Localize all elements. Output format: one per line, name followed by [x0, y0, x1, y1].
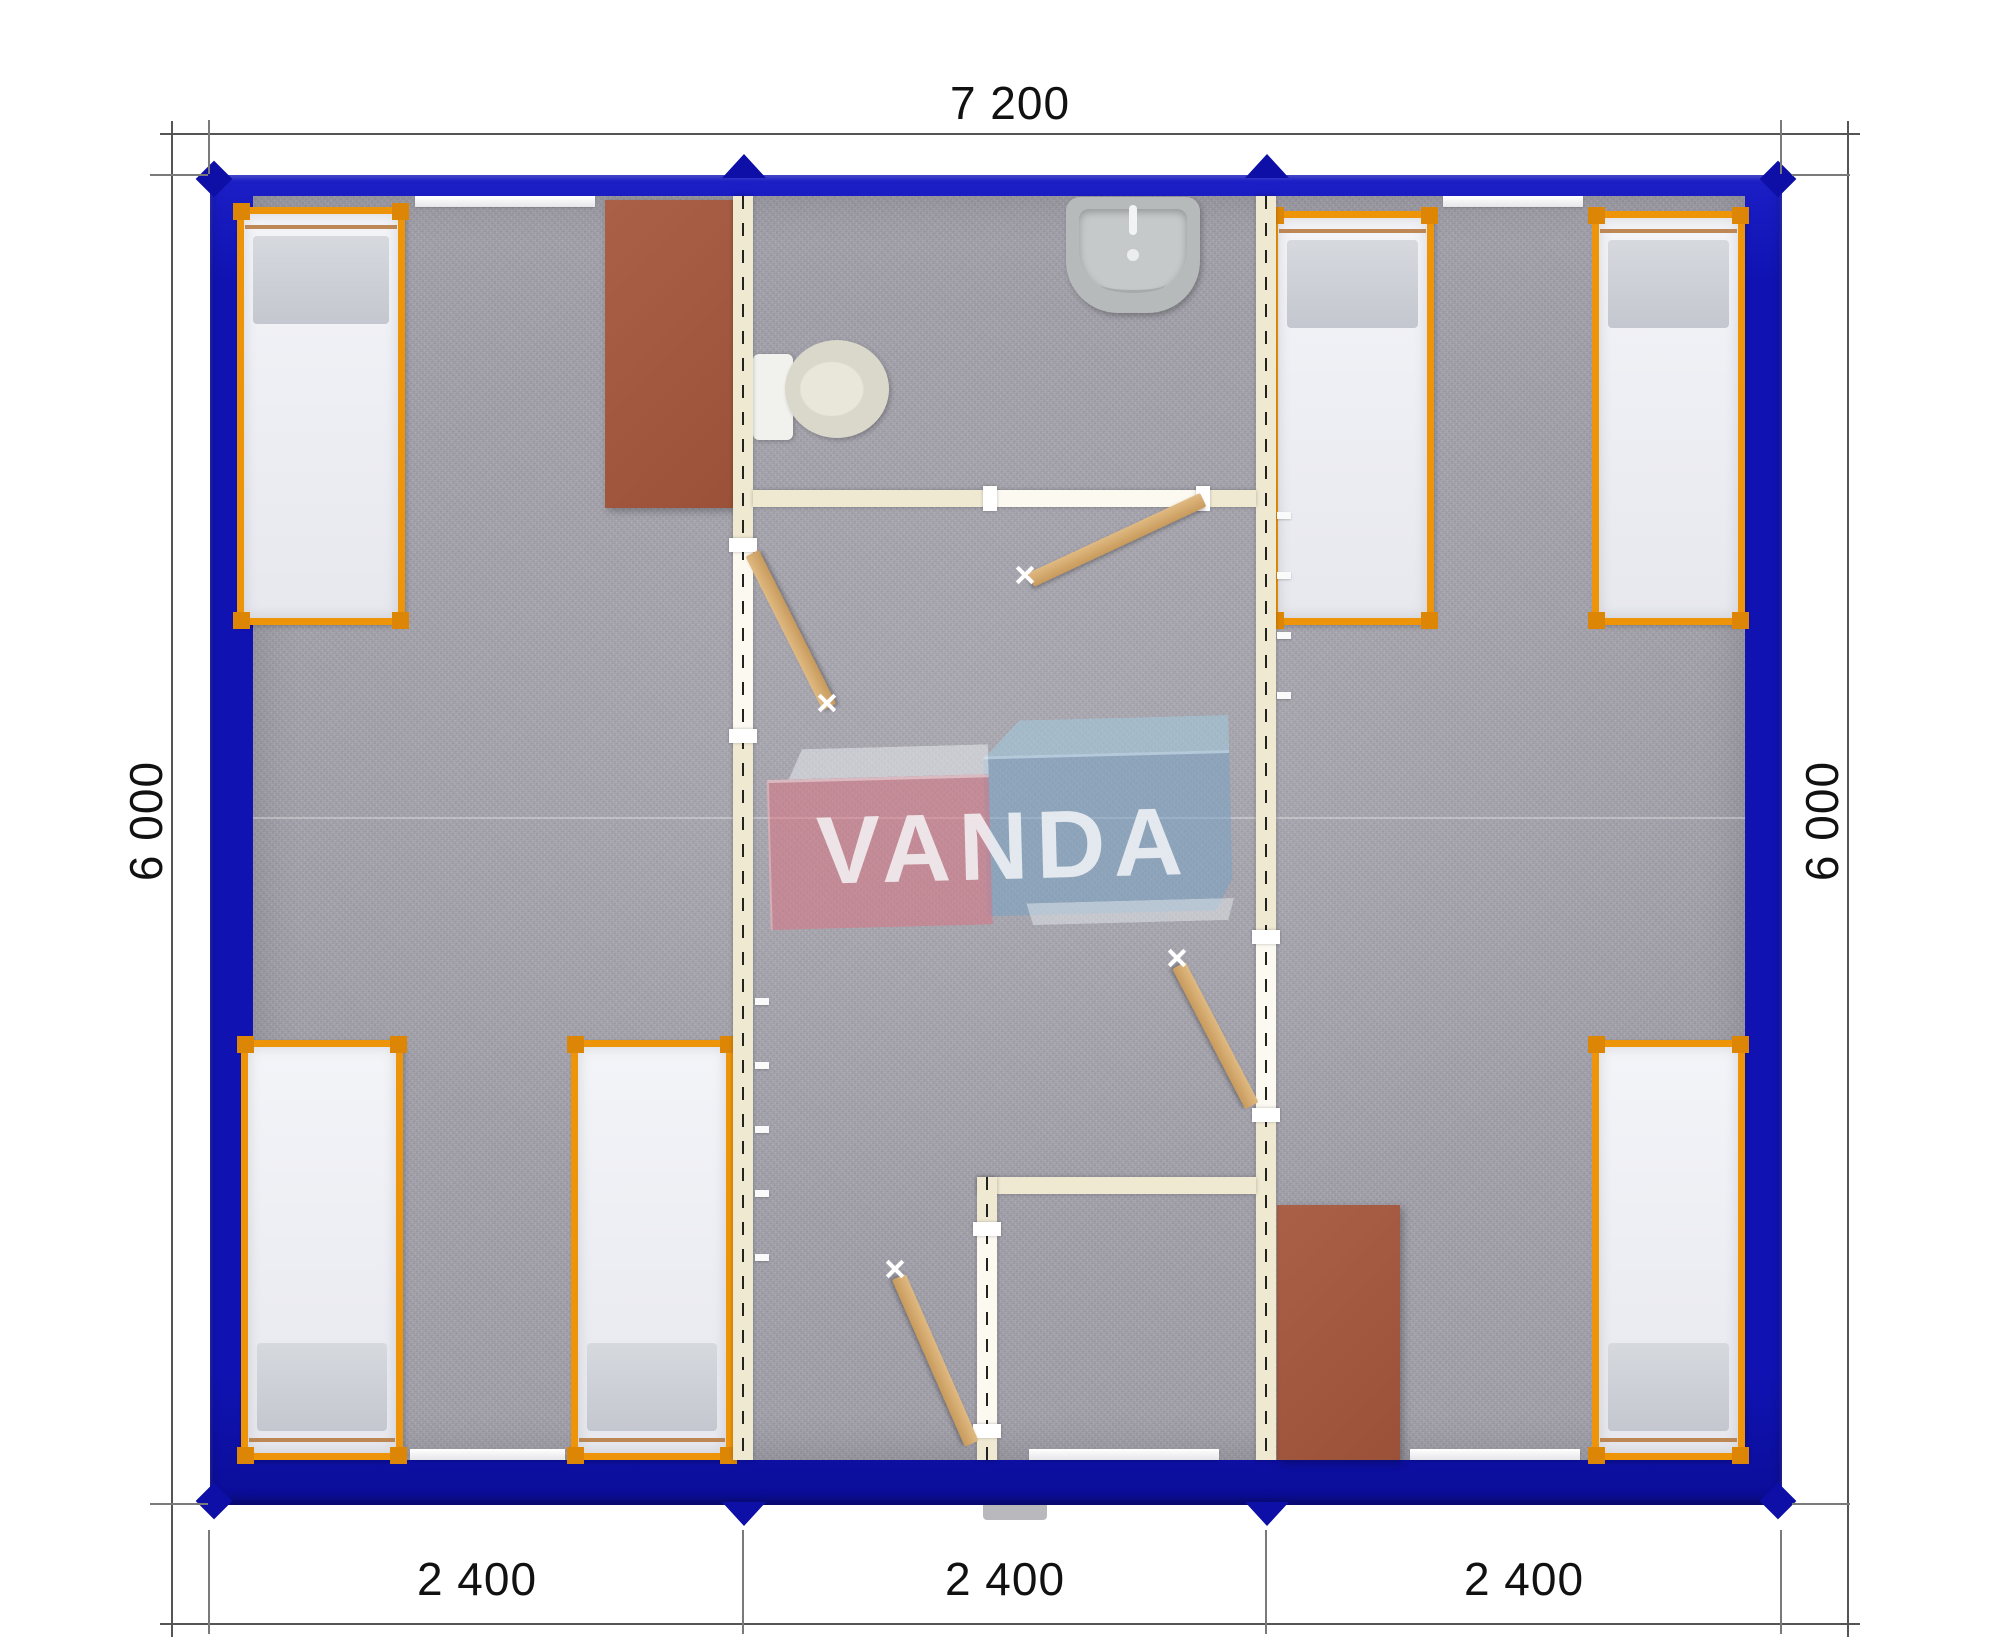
- extension-line: [742, 1530, 744, 1634]
- extension-line: [208, 120, 210, 174]
- bed-pillow: [253, 236, 389, 324]
- sink-drain: [1127, 249, 1139, 261]
- module-joint-arrow-bottom: [1245, 1502, 1289, 1526]
- door-opening: [977, 1233, 997, 1430]
- toilet-bowl: [785, 340, 889, 438]
- logo-text: VANDA: [772, 786, 1235, 908]
- extension-line: [208, 1530, 210, 1634]
- window-top-right-room: [1443, 196, 1583, 207]
- extension-line: [1792, 1503, 1850, 1505]
- floor-plan-canvas: 7 200 6 000 6 000 2 400 2 400 2 400: [0, 0, 2000, 1648]
- coat-hook: [1277, 692, 1291, 699]
- dimension-label-height-right: 6 000: [1799, 711, 1845, 931]
- coat-hook: [1277, 632, 1291, 639]
- module-joint-arrow-bottom: [722, 1502, 766, 1526]
- module-joint-arrow-top: [1245, 154, 1289, 178]
- sink-edge: [1100, 275, 1166, 293]
- vanda-watermark-logo: VANDA: [762, 712, 1237, 936]
- bed-headboard-line: [1600, 1438, 1737, 1442]
- dimension-label-module-1: 2 400: [367, 1556, 587, 1602]
- dimension-label-module-2: 2 400: [895, 1556, 1115, 1602]
- door-opening: [733, 545, 753, 736]
- bed-pillow: [257, 1343, 387, 1431]
- vestibule-wall-vertical: [977, 1177, 997, 1460]
- coat-hook: [1277, 512, 1291, 519]
- corner-marker: [196, 1483, 233, 1520]
- vestibule-wall-horizontal: [977, 1177, 1256, 1194]
- toilet-icon: [753, 340, 893, 445]
- window-bottom-right-room: [1410, 1449, 1580, 1460]
- bed-headboard-line: [579, 1438, 725, 1442]
- coat-hook: [755, 1254, 769, 1261]
- coat-hook: [755, 1126, 769, 1133]
- extension-line: [1265, 1530, 1267, 1634]
- door-jamb: [1252, 930, 1280, 944]
- bed: [241, 1040, 403, 1460]
- sink-icon: [1066, 197, 1200, 313]
- coat-hook: [755, 1190, 769, 1197]
- bed-pillow: [1608, 1343, 1729, 1431]
- bed: [237, 207, 405, 625]
- entrance-step: [983, 1505, 1047, 1520]
- corner-marker: [196, 161, 233, 198]
- table: [605, 200, 741, 508]
- interior-wall-right: [1256, 196, 1276, 1460]
- entrance-threshold: [1029, 1449, 1219, 1460]
- corner-marker: [1760, 1483, 1797, 1520]
- bed-headboard-line: [249, 1438, 395, 1442]
- bed-pillow: [1287, 240, 1418, 328]
- door-jamb: [1252, 1108, 1280, 1122]
- window-bottom-left-room: [410, 1449, 565, 1460]
- bed-pillow: [1608, 240, 1729, 328]
- faucet: [1129, 205, 1137, 235]
- bed: [1271, 211, 1434, 625]
- bed-headboard-line: [245, 225, 397, 229]
- bed-headboard-line: [1600, 229, 1737, 233]
- door-opening: [1256, 943, 1276, 1115]
- dimension-label-width-total: 7 200: [900, 80, 1120, 126]
- door-jamb: [729, 538, 757, 552]
- coat-hook: [755, 998, 769, 1005]
- door-jamb: [729, 729, 757, 743]
- door-jamb: [973, 1222, 1001, 1236]
- coat-hook: [1277, 572, 1291, 579]
- window-top-left-room: [415, 196, 595, 207]
- extension-line: [150, 174, 208, 176]
- extension-line: [150, 1503, 208, 1505]
- corner-marker: [1760, 161, 1797, 198]
- dimension-line-bottom: [160, 1623, 1860, 1625]
- door-jamb: [983, 486, 997, 511]
- module-joint-arrow-top: [722, 154, 766, 178]
- dimension-label-module-3: 2 400: [1414, 1556, 1634, 1602]
- bed: [571, 1040, 733, 1460]
- table: [1277, 1205, 1400, 1460]
- coat-hook: [755, 1062, 769, 1069]
- bed-headboard-line: [1279, 229, 1426, 233]
- extension-line: [1780, 120, 1782, 174]
- door-jamb: [973, 1424, 1001, 1438]
- door-opening: [990, 490, 1200, 507]
- bed-pillow: [587, 1343, 717, 1431]
- bed: [1592, 1040, 1745, 1460]
- dimension-line-top: [160, 133, 1860, 135]
- extension-line: [1780, 1530, 1782, 1634]
- bed: [1592, 211, 1745, 625]
- extension-line: [1792, 174, 1850, 176]
- dimension-label-height-left: 6 000: [123, 711, 169, 931]
- interior-wall-left: [733, 196, 753, 1460]
